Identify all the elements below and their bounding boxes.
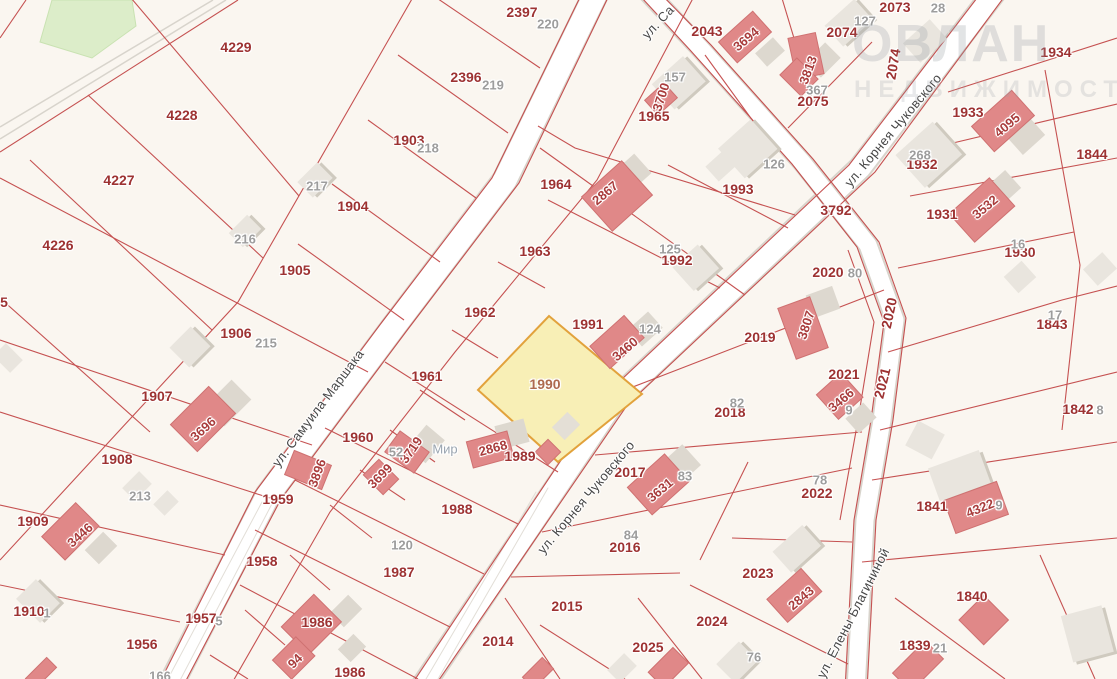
map-vector-layer bbox=[0, 0, 1117, 679]
map-canvas[interactable]: 4229422842274226239723961903190419051906… bbox=[0, 0, 1117, 679]
